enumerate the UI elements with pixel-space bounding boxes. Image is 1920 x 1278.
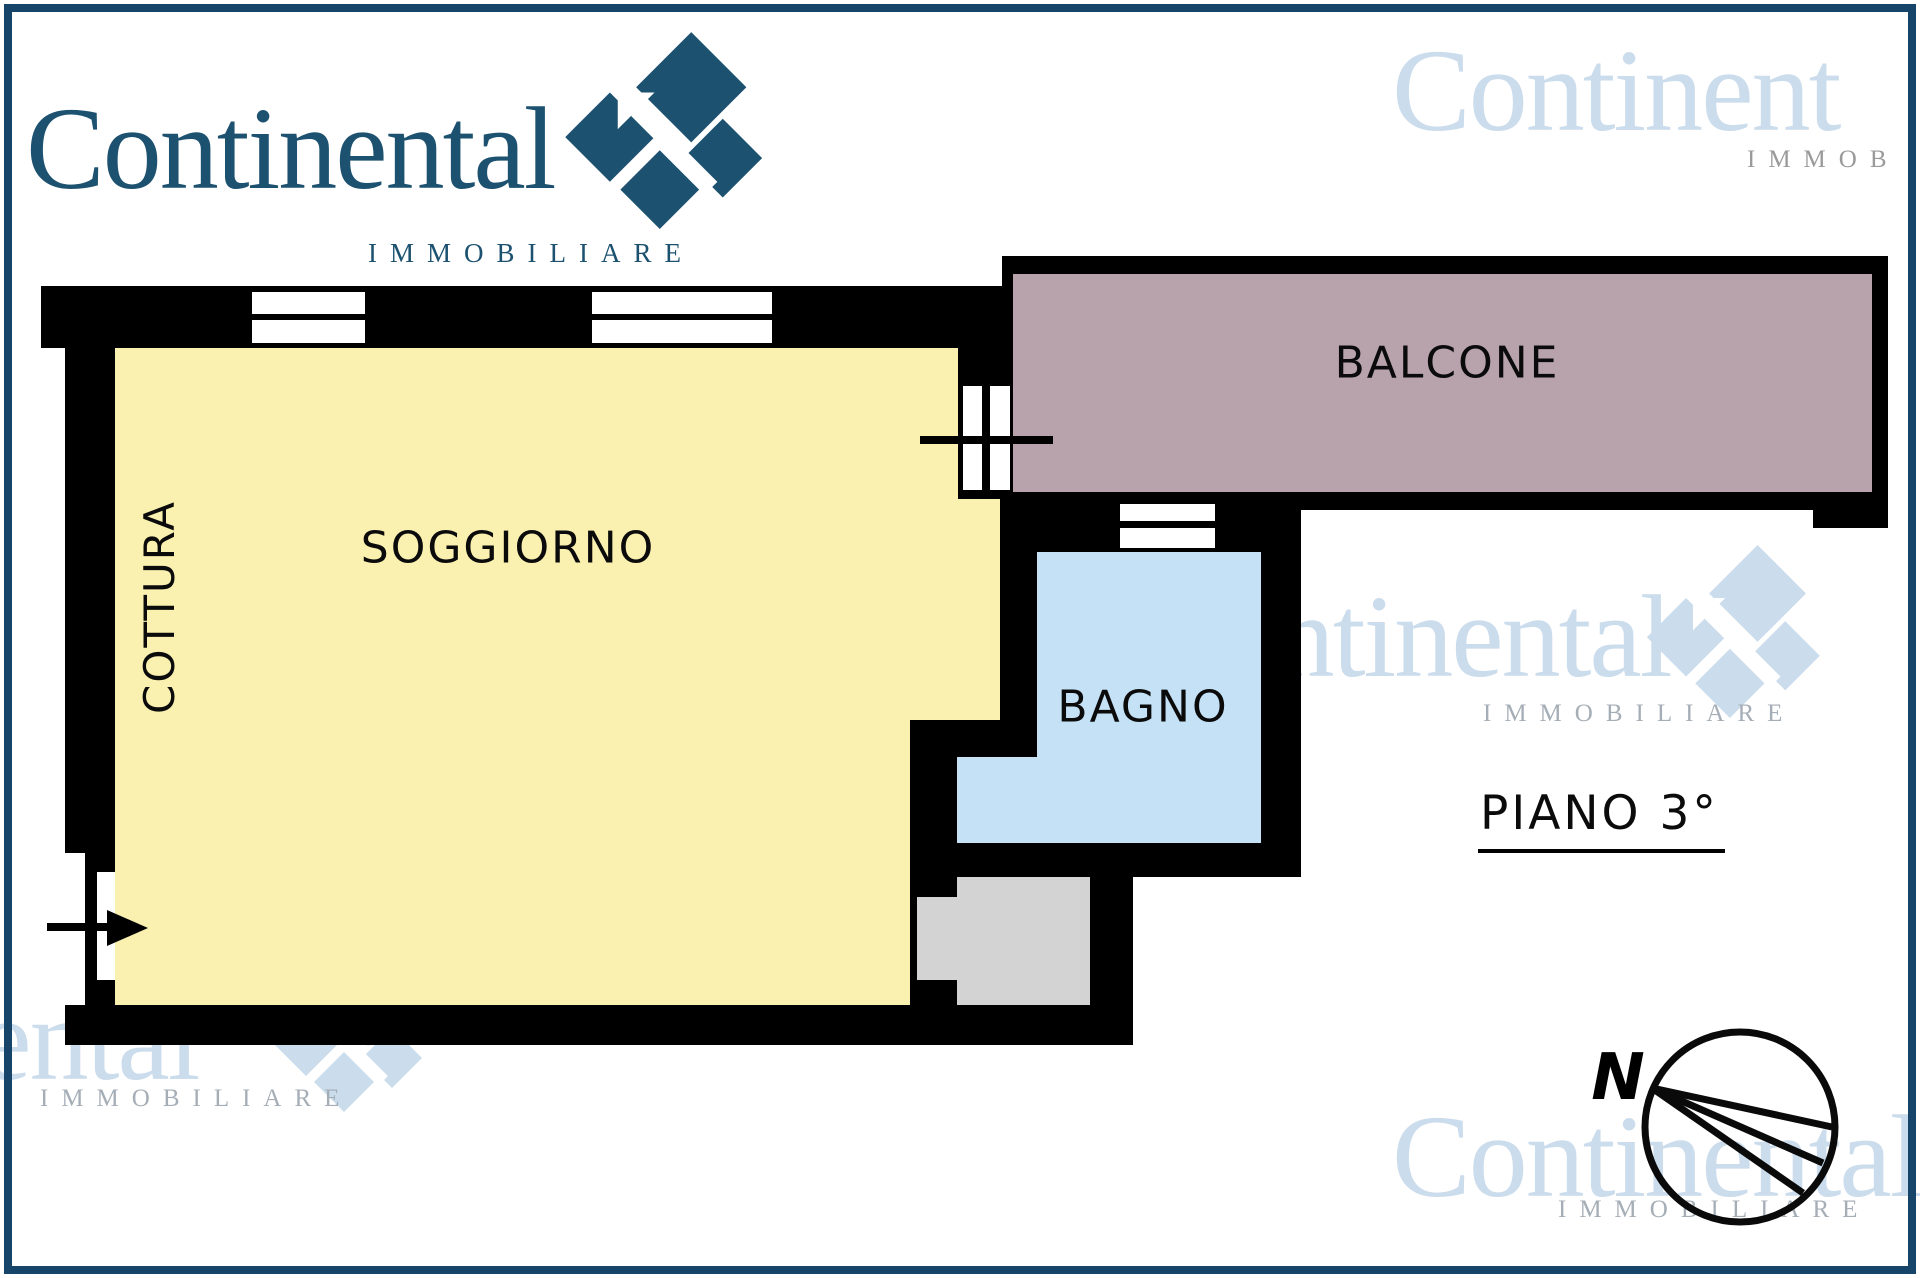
- wall-bottom: [65, 1005, 1133, 1045]
- wall-entry-jamb-bottom: [85, 980, 115, 1005]
- floor-label: PIANO 3°: [1478, 786, 1725, 853]
- label-balcone: BALCONE: [1335, 338, 1560, 389]
- label-soggiorno: SOGGIORNO: [361, 523, 655, 574]
- wall-left: [65, 348, 115, 853]
- window-1-mullion: [252, 314, 365, 320]
- compass-north-label: N: [1591, 1041, 1645, 1115]
- window-2-mullion: [592, 314, 772, 320]
- room-soggiorno: [115, 348, 1000, 1005]
- balcone-corner-step: [1813, 510, 1888, 528]
- wall-step-horizontal: [910, 720, 1037, 757]
- compass-icon: [1630, 1018, 1850, 1238]
- balcony-door-sill-line: [920, 436, 1053, 444]
- label-cottura: COTTURA: [134, 447, 186, 767]
- wall-entry-jamb-top: [85, 853, 115, 872]
- wall-bagno-bottom: [957, 843, 1301, 877]
- wall-vestibule-right: [1090, 877, 1133, 1045]
- wall-top: [41, 286, 1002, 348]
- label-bagno: BAGNO: [1057, 682, 1228, 733]
- wall-bagno-right: [1261, 510, 1301, 877]
- bagno-window-mullion: [1120, 521, 1215, 528]
